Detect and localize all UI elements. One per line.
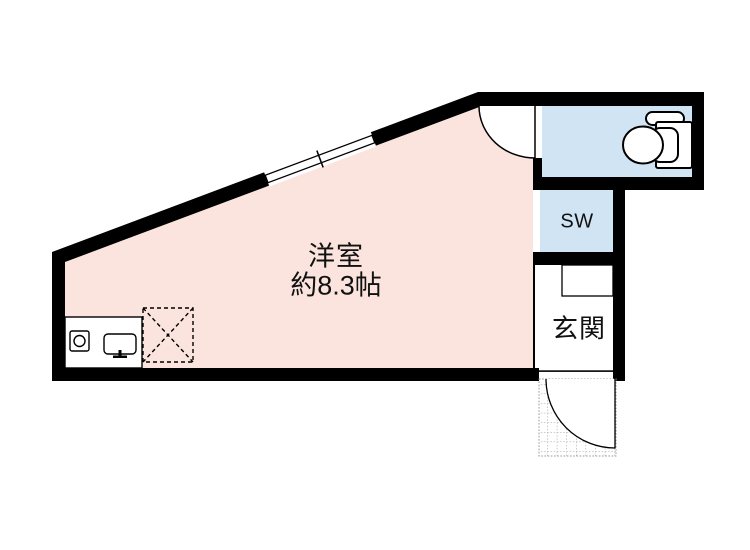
entrance-label: 玄関 (552, 309, 606, 346)
kitchen-sink-icon (104, 334, 136, 358)
entrance-step (562, 265, 613, 296)
stove-burner-icon (70, 331, 89, 351)
storage-opening (533, 190, 540, 252)
main-room-size-label: 約8.3帖 (290, 264, 382, 303)
threshold-line (539, 370, 613, 372)
floorplan: 洋室 約8.3帖 SW 玄関 (0, 0, 750, 550)
kitchen-counter (65, 317, 142, 368)
storage-label: SW (560, 211, 593, 234)
